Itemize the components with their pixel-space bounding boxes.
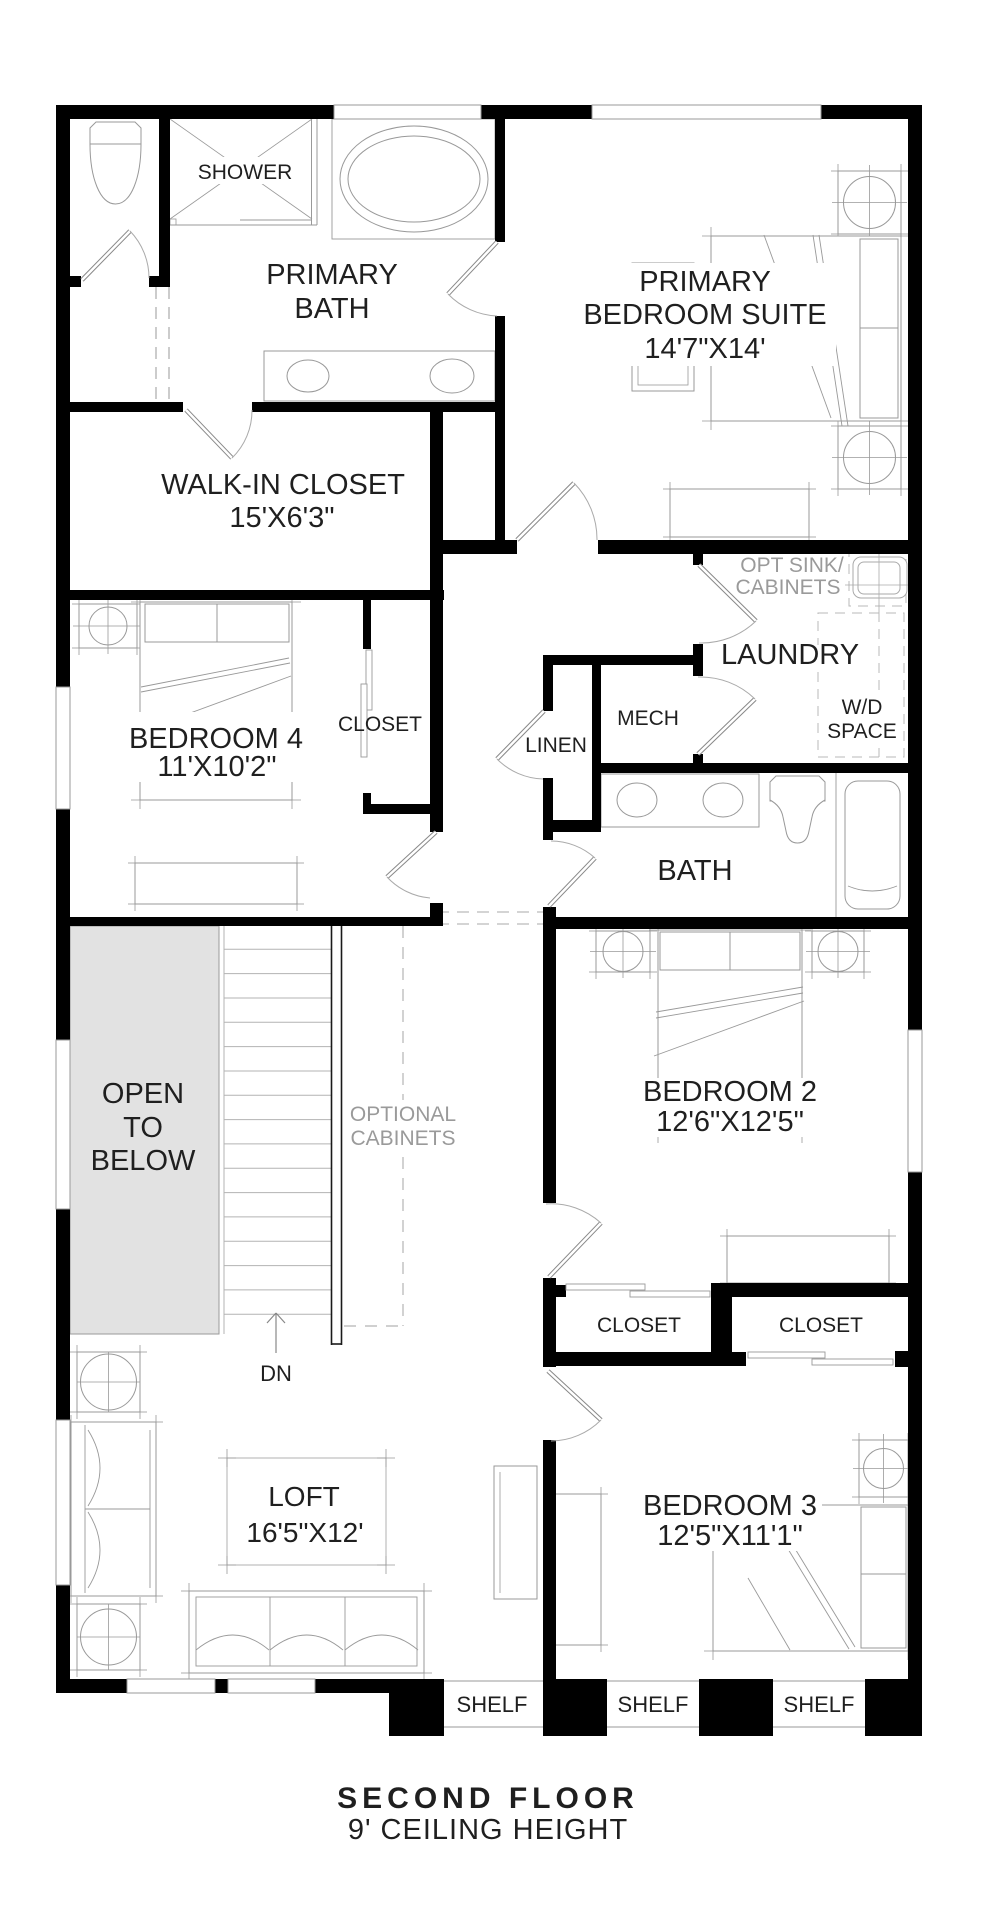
svg-text:BEDROOM 3: BEDROOM 3 [643, 1490, 817, 1522]
svg-text:BEDROOM 2: BEDROOM 2 [643, 1076, 817, 1108]
svg-text:PRIMARY: PRIMARY [639, 266, 771, 298]
svg-text:BATH: BATH [294, 293, 369, 325]
svg-text:SHOWER: SHOWER [198, 161, 293, 184]
svg-text:CLOSET: CLOSET [338, 713, 422, 736]
svg-text:CABINETS: CABINETS [735, 576, 840, 599]
svg-text:SHELF: SHELF [618, 1692, 689, 1717]
svg-text:16'5"X12': 16'5"X12' [246, 1517, 363, 1548]
svg-text:SHELF: SHELF [784, 1692, 855, 1717]
svg-text:SECOND FLOOR: SECOND FLOOR [337, 1782, 639, 1815]
svg-text:12'6"X12'5": 12'6"X12'5" [656, 1106, 804, 1138]
svg-text:TO: TO [123, 1112, 163, 1144]
svg-text:LAUNDRY: LAUNDRY [721, 639, 859, 671]
svg-text:OPEN: OPEN [102, 1078, 184, 1110]
svg-text:SHELF: SHELF [457, 1692, 528, 1717]
svg-text:14'7"X14': 14'7"X14' [644, 333, 765, 365]
svg-text:BEDROOM SUITE: BEDROOM SUITE [583, 299, 826, 331]
svg-text:12'5"X11'1": 12'5"X11'1" [657, 1520, 803, 1552]
svg-text:CLOSET: CLOSET [779, 1314, 863, 1337]
svg-text:DN: DN [260, 1361, 292, 1386]
svg-text:15'X6'3": 15'X6'3" [229, 502, 334, 534]
svg-text:LINEN: LINEN [525, 734, 587, 757]
svg-text:CABINETS: CABINETS [350, 1127, 455, 1150]
svg-text:OPTIONAL: OPTIONAL [350, 1103, 456, 1126]
svg-text:W/D: W/D [842, 696, 883, 719]
svg-text:MECH: MECH [617, 707, 679, 730]
svg-text:OPT SINK/: OPT SINK/ [740, 554, 844, 577]
svg-text:BATH: BATH [657, 855, 732, 887]
svg-text:LOFT: LOFT [268, 1481, 340, 1512]
svg-text:9' CEILING HEIGHT: 9' CEILING HEIGHT [348, 1814, 628, 1846]
svg-text:CLOSET: CLOSET [597, 1314, 681, 1337]
svg-text:WALK-IN CLOSET: WALK-IN CLOSET [161, 469, 405, 501]
svg-text:11'X10'2": 11'X10'2" [157, 751, 276, 783]
svg-text:SPACE: SPACE [827, 720, 897, 743]
svg-text:PRIMARY: PRIMARY [266, 259, 398, 291]
svg-text:BELOW: BELOW [91, 1145, 196, 1177]
